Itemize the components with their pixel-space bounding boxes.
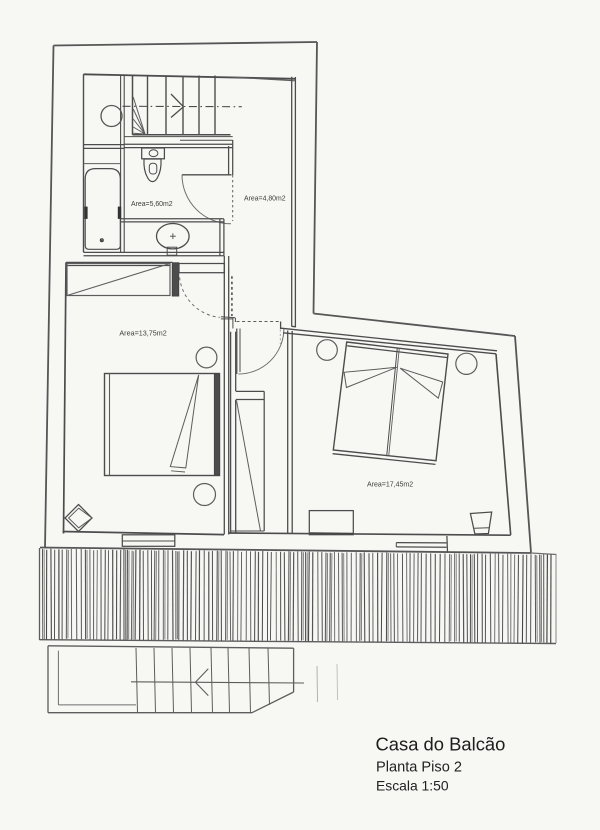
svg-text:Area=5,60m2: Area=5,60m2 <box>131 201 173 208</box>
svg-text:Escala 1:50: Escala 1:50 <box>376 778 449 794</box>
svg-text:Planta Piso 2: Planta Piso 2 <box>376 760 462 776</box>
svg-text:Area=13,75m2: Area=13,75m2 <box>119 328 166 337</box>
svg-text:Casa do Balcão: Casa do Balcão <box>376 734 506 755</box>
svg-text:Area=4,80m2: Area=4,80m2 <box>244 196 286 203</box>
svg-text:Area=17,45m2: Area=17,45m2 <box>367 482 413 489</box>
